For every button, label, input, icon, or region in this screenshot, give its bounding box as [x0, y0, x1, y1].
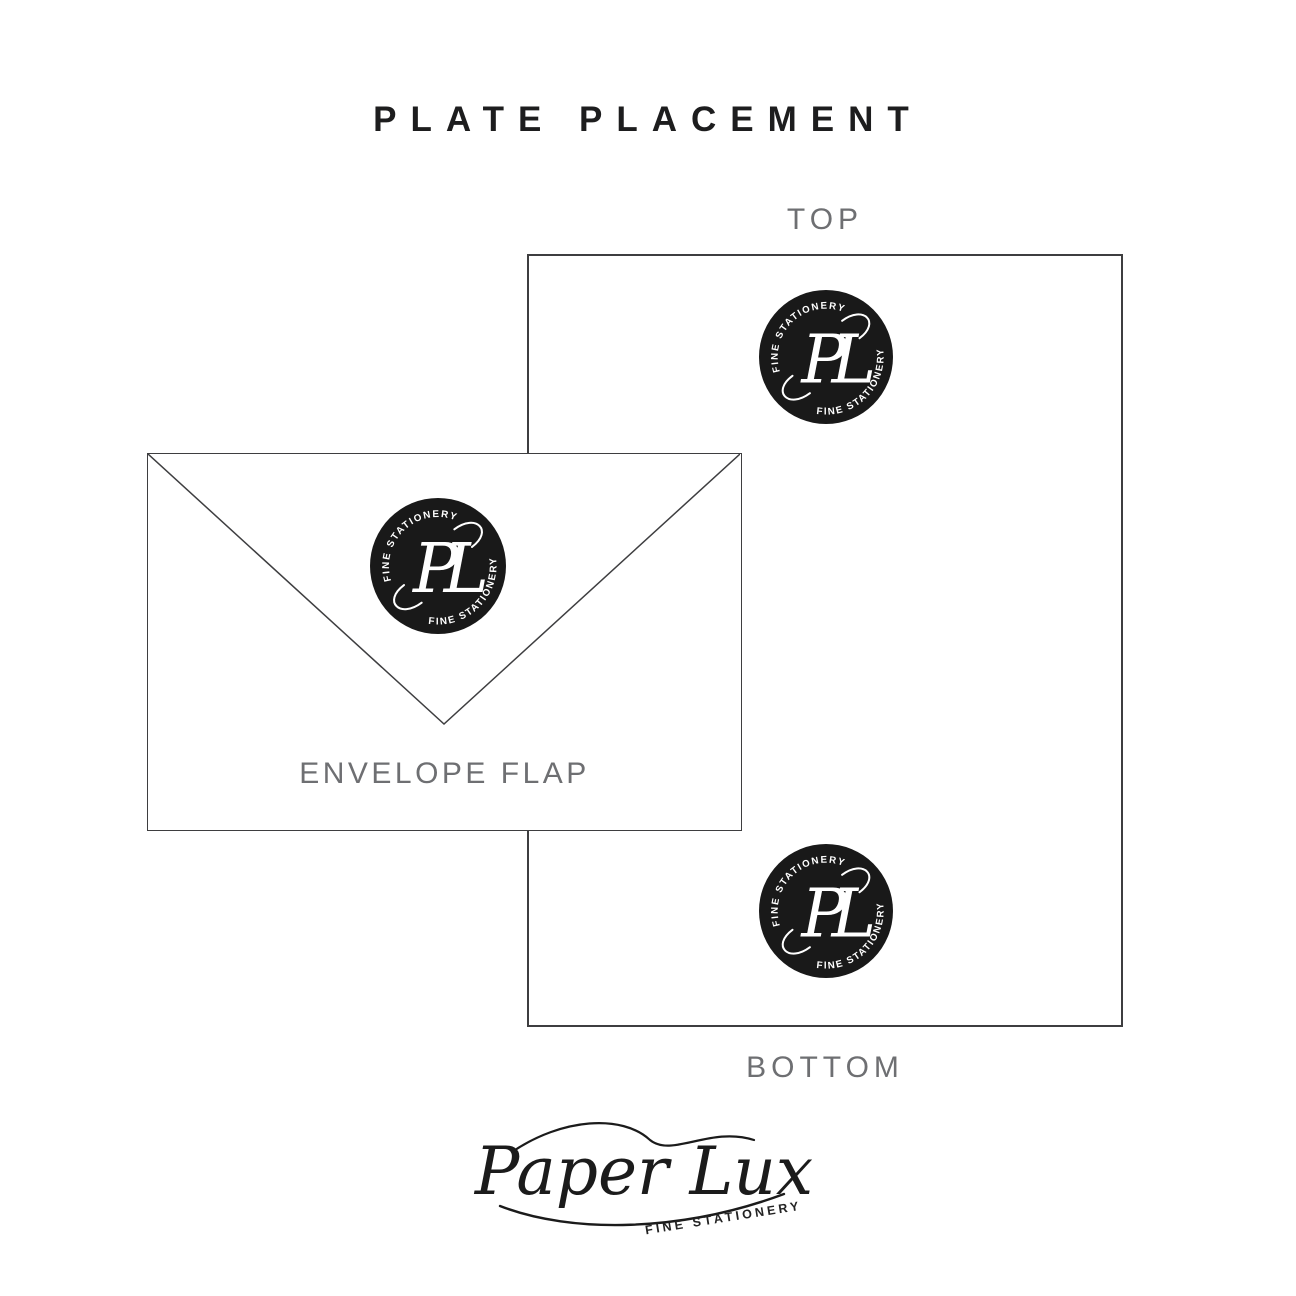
pl-monogram-seal-top-icon: FINE STATIONERY FINE STATIONERY PL — [759, 290, 893, 424]
label-bottom: BOTTOM — [527, 1051, 1123, 1085]
logo-script-text: Paper Lux — [474, 1133, 813, 1210]
paper-lux-logo: Paper Lux FINE STATIONERY — [472, 1110, 822, 1250]
label-envelope-flap: ENVELOPE FLAP — [147, 757, 742, 791]
page-title: PLATE PLACEMENT — [0, 100, 1296, 140]
plate-placement-diagram: PLATE PLACEMENT TOP FINE STATIONERY FINE… — [0, 0, 1296, 1296]
label-top: TOP — [527, 203, 1123, 237]
pl-monogram-seal-envelope-icon: FINE STATIONERY FINE STATIONERY PL — [370, 498, 506, 634]
pl-monogram-seal-bottom-icon: FINE STATIONERY FINE STATIONERY PL — [759, 844, 893, 978]
